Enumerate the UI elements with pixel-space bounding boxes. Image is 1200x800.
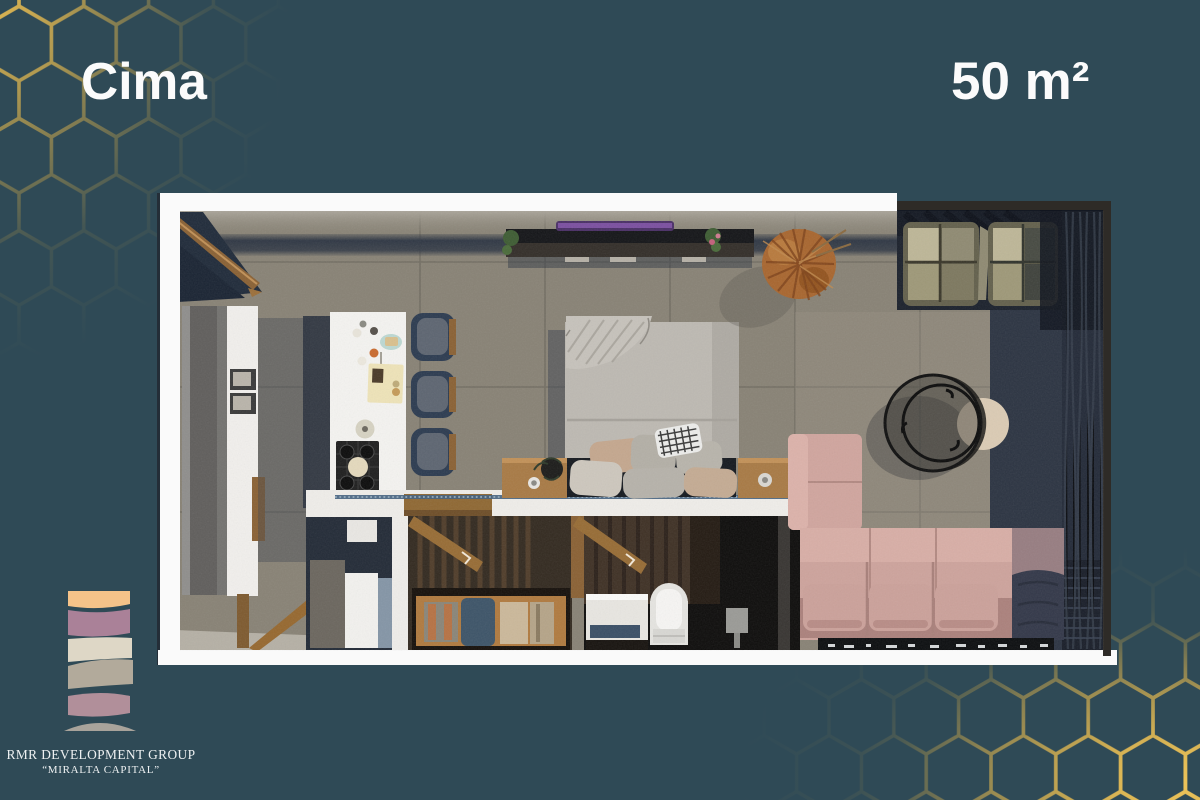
svg-text:“MIRALTA CAPITAL”: “MIRALTA CAPITAL” (42, 764, 160, 776)
svg-text:Cima: Cima (81, 52, 207, 110)
svg-text:RMR DEVELOPMENT GROUP: RMR DEVELOPMENT GROUP (7, 747, 196, 762)
svg-text:50 m²: 50 m² (951, 52, 1089, 111)
